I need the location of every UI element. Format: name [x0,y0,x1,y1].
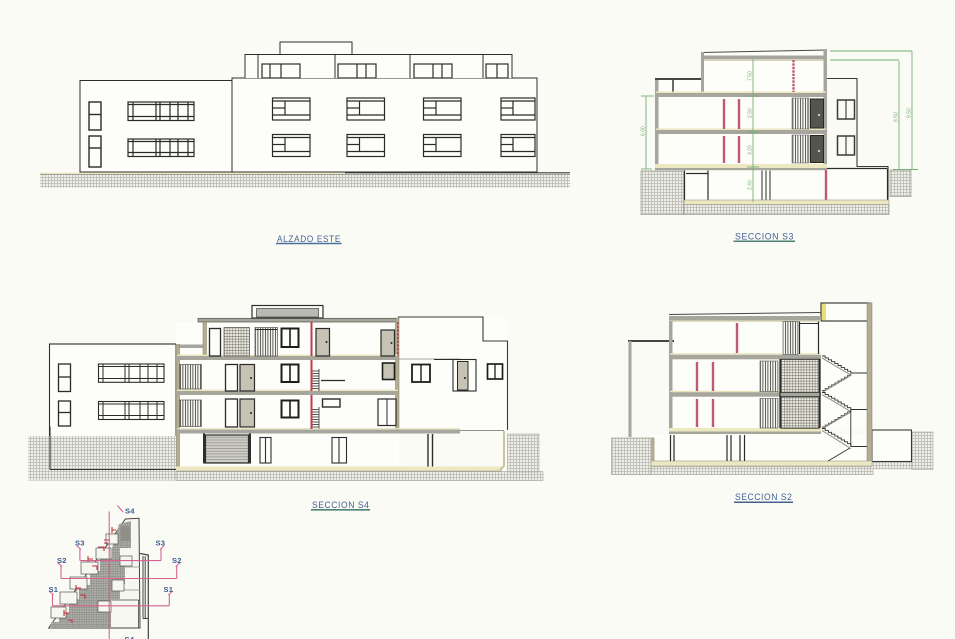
svg-text:SECCION S4: SECCION S4 [312,500,370,510]
svg-text:S2: S2 [57,556,67,565]
svg-text:S1: S1 [49,585,59,594]
svg-text:S4: S4 [125,635,135,639]
svg-text:S3: S3 [75,539,85,548]
svg-text:6.00: 6.00 [641,126,647,136]
svg-text:9.50: 9.50 [907,108,913,118]
svg-text:SECCION S3: SECCION S3 [735,231,794,241]
svg-text:S1: S1 [164,585,174,594]
svg-text:2.40: 2.40 [748,180,754,190]
svg-text:2.50: 2.50 [748,108,754,118]
svg-text:7.50: 7.50 [748,71,754,81]
svg-text:S3: S3 [156,539,166,548]
svg-text:3.20: 3.20 [748,145,754,155]
svg-text:S2: S2 [172,556,182,565]
svg-text:SECCION S2: SECCION S2 [735,492,793,502]
svg-text:S4: S4 [125,507,135,516]
svg-text:8.50: 8.50 [894,112,900,122]
